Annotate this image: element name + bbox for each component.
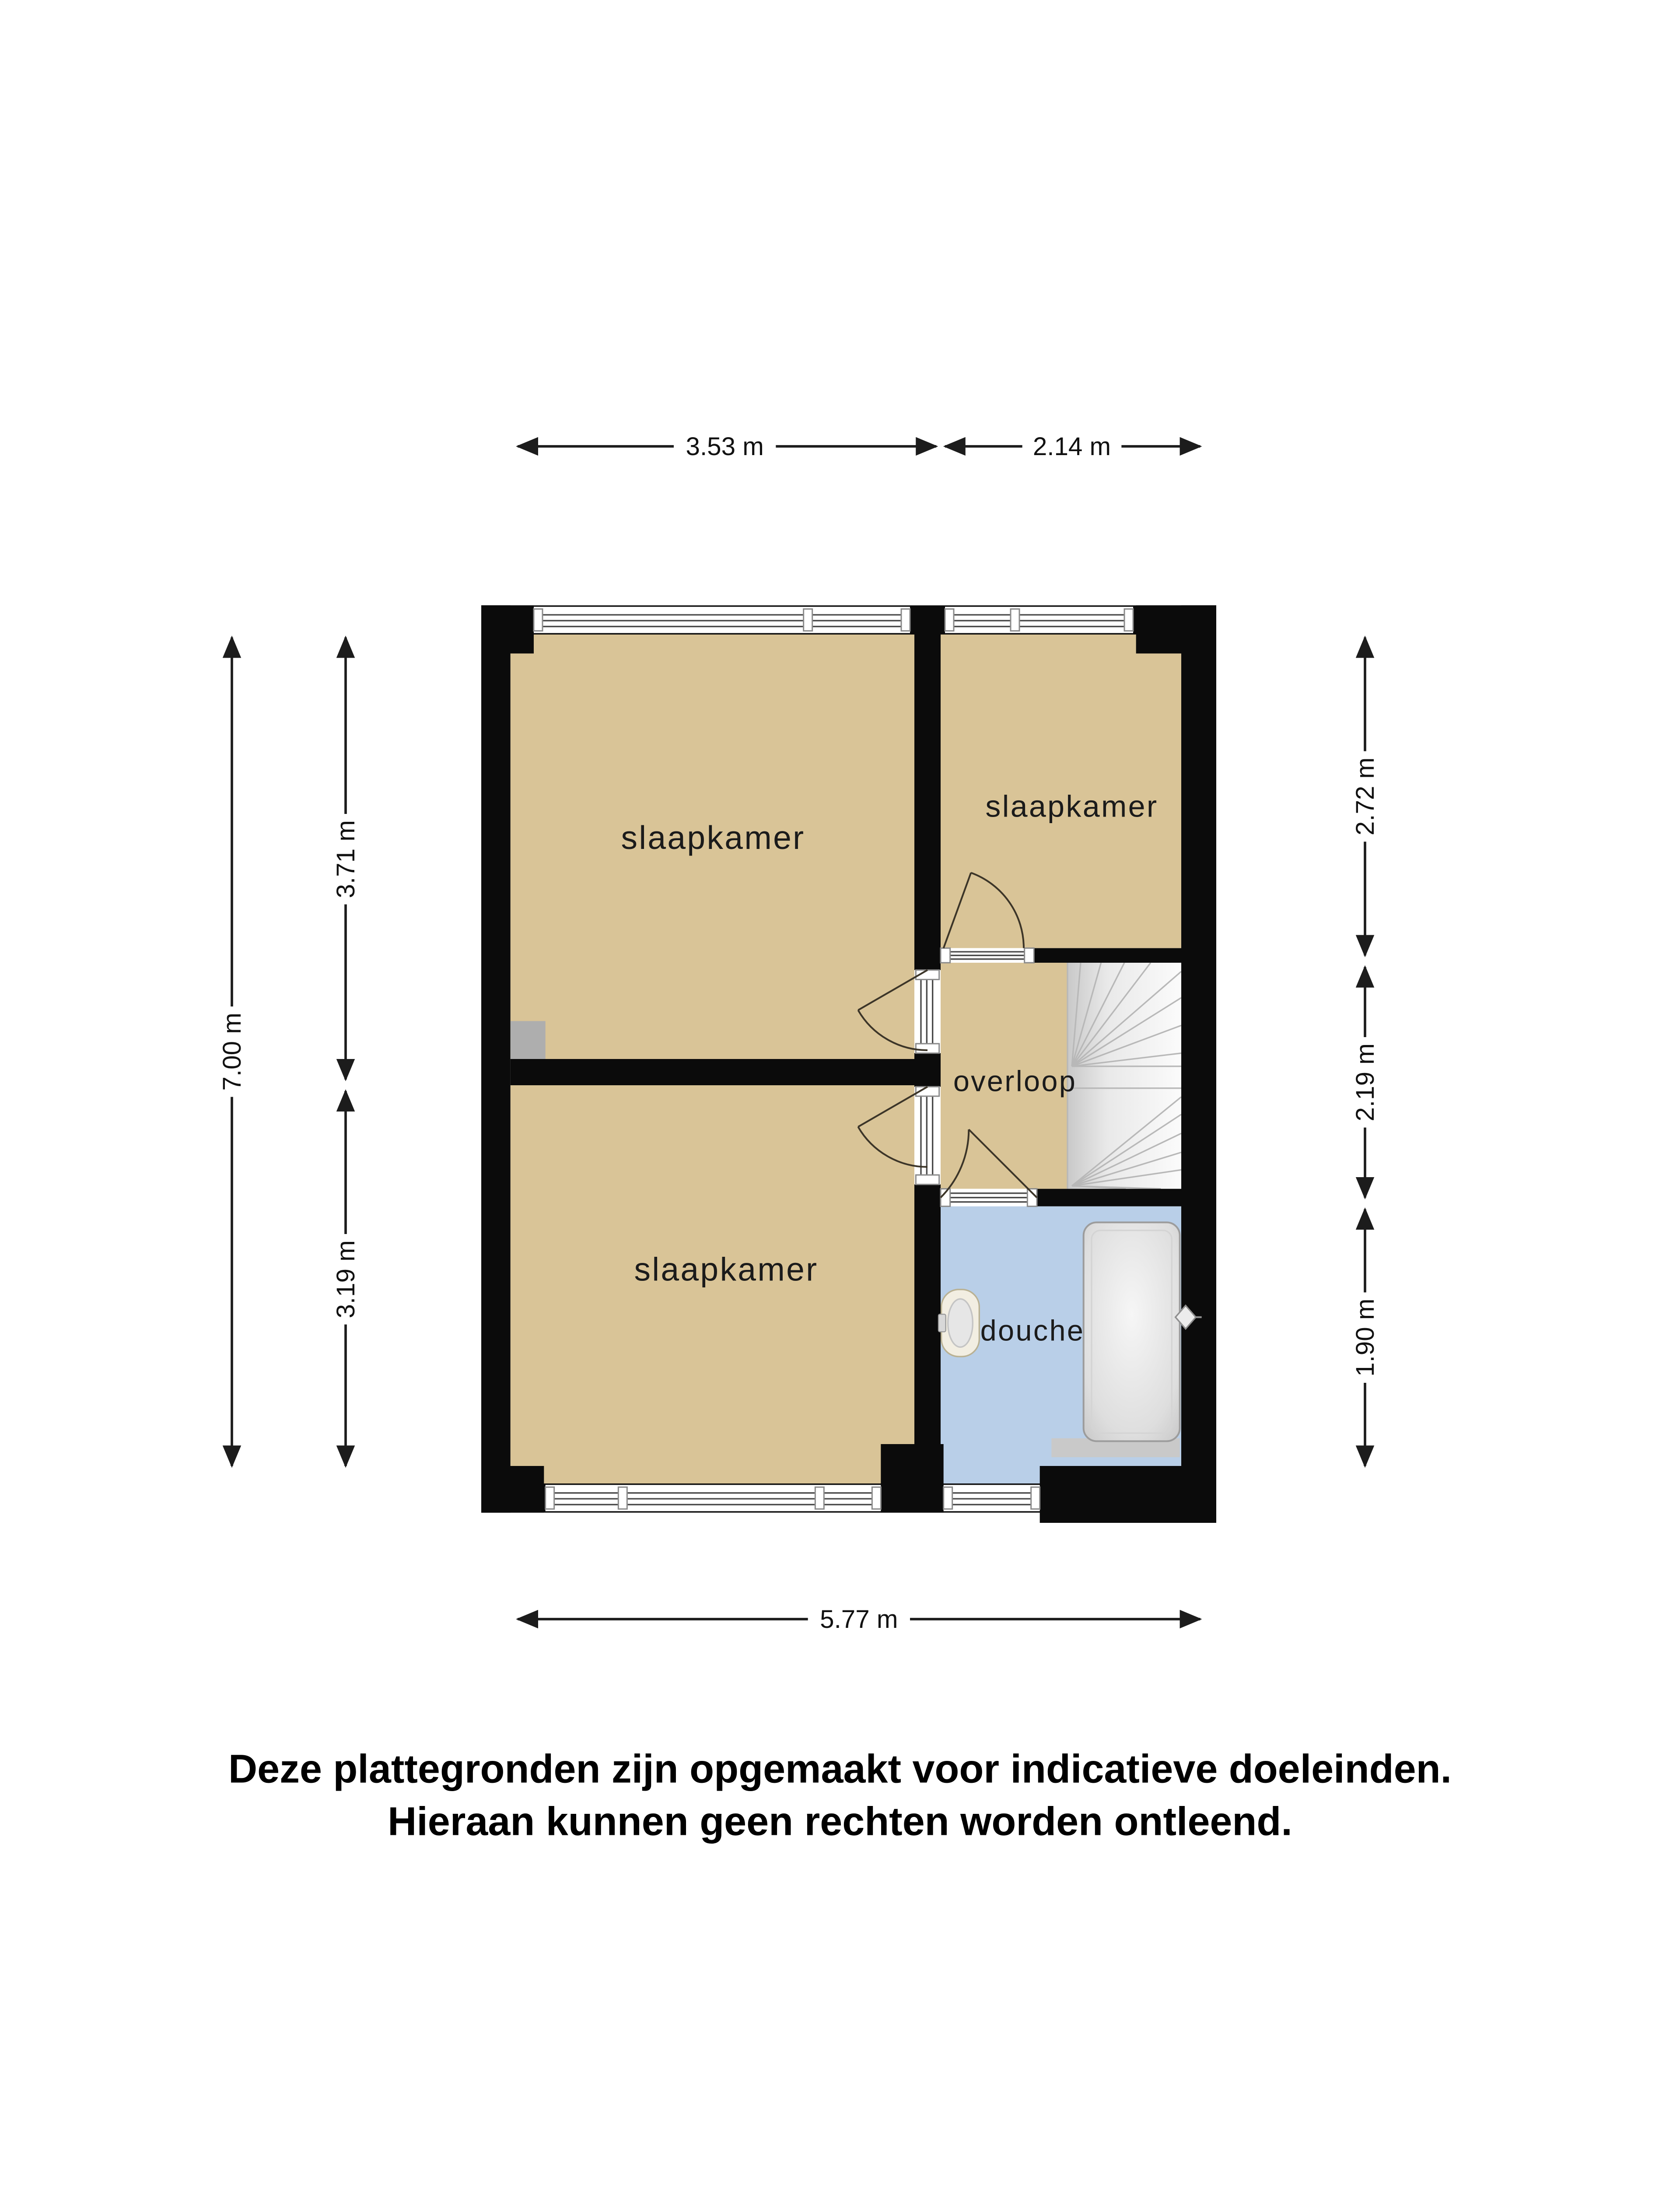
room-label-bedroom-ne: slaapkamer — [985, 789, 1158, 824]
sink — [938, 1290, 979, 1357]
wall-interior-vertical-upper — [914, 635, 941, 970]
wall-interior-horizontal — [511, 1059, 914, 1085]
dimension-label-top-2: 2.14 m — [1033, 432, 1111, 461]
dimension-label-right-1: 2.72 m — [1351, 757, 1379, 835]
disclaimer-line-2: Hieraan kunnen geen rechten worden ontle… — [388, 1799, 1292, 1844]
wall-corner-ne — [1136, 605, 1216, 653]
dimension-label-top-1: 3.53 m — [686, 432, 764, 461]
window-sw-bottom — [546, 1485, 881, 1511]
room-label-bedroom-nw: slaapkamer — [621, 819, 805, 856]
stairs — [1067, 963, 1181, 1189]
wall-right — [1181, 605, 1216, 1512]
dimension-label-left-inner-1: 3.71 m — [332, 820, 360, 898]
room-label-landing: overloop — [953, 1065, 1077, 1098]
wall-corner-se — [1040, 1466, 1216, 1523]
sink-tap — [938, 1314, 946, 1332]
dimension-label-right-3: 1.90 m — [1351, 1299, 1379, 1377]
disclaimer-line-1: Deze plattegronden zijn opgemaakt voor i… — [228, 1746, 1452, 1791]
dimension-label-left-outer-1: 7.00 m — [218, 1013, 246, 1090]
wall-ne-bedroom-south — [1034, 948, 1181, 963]
wall-corner-nw — [481, 605, 534, 653]
window-ne-top — [945, 607, 1133, 633]
window-nw-top — [534, 607, 910, 633]
wall-left — [481, 605, 511, 1512]
window-shower-bottom — [944, 1485, 1040, 1511]
wall-landing-shower — [1037, 1189, 1181, 1206]
floor-plan: slaapkamer slaapkamer overloop slaapkame… — [0, 0, 1680, 2188]
duct — [511, 1021, 546, 1059]
dimension-label-right-2: 2.19 m — [1351, 1043, 1379, 1121]
wall-interior-vertical-mid — [914, 1053, 941, 1087]
dimension-label-bottom-1: 5.77 m — [820, 1605, 898, 1634]
wall-corner-sw — [481, 1466, 544, 1513]
room-label-shower: douche — [980, 1315, 1085, 1347]
dimension-label-left-inner-2: 3.19 m — [332, 1240, 360, 1318]
room-label-bedroom-sw: slaapkamer — [634, 1251, 818, 1288]
wall-interior-vertical-lower — [914, 1185, 941, 1483]
